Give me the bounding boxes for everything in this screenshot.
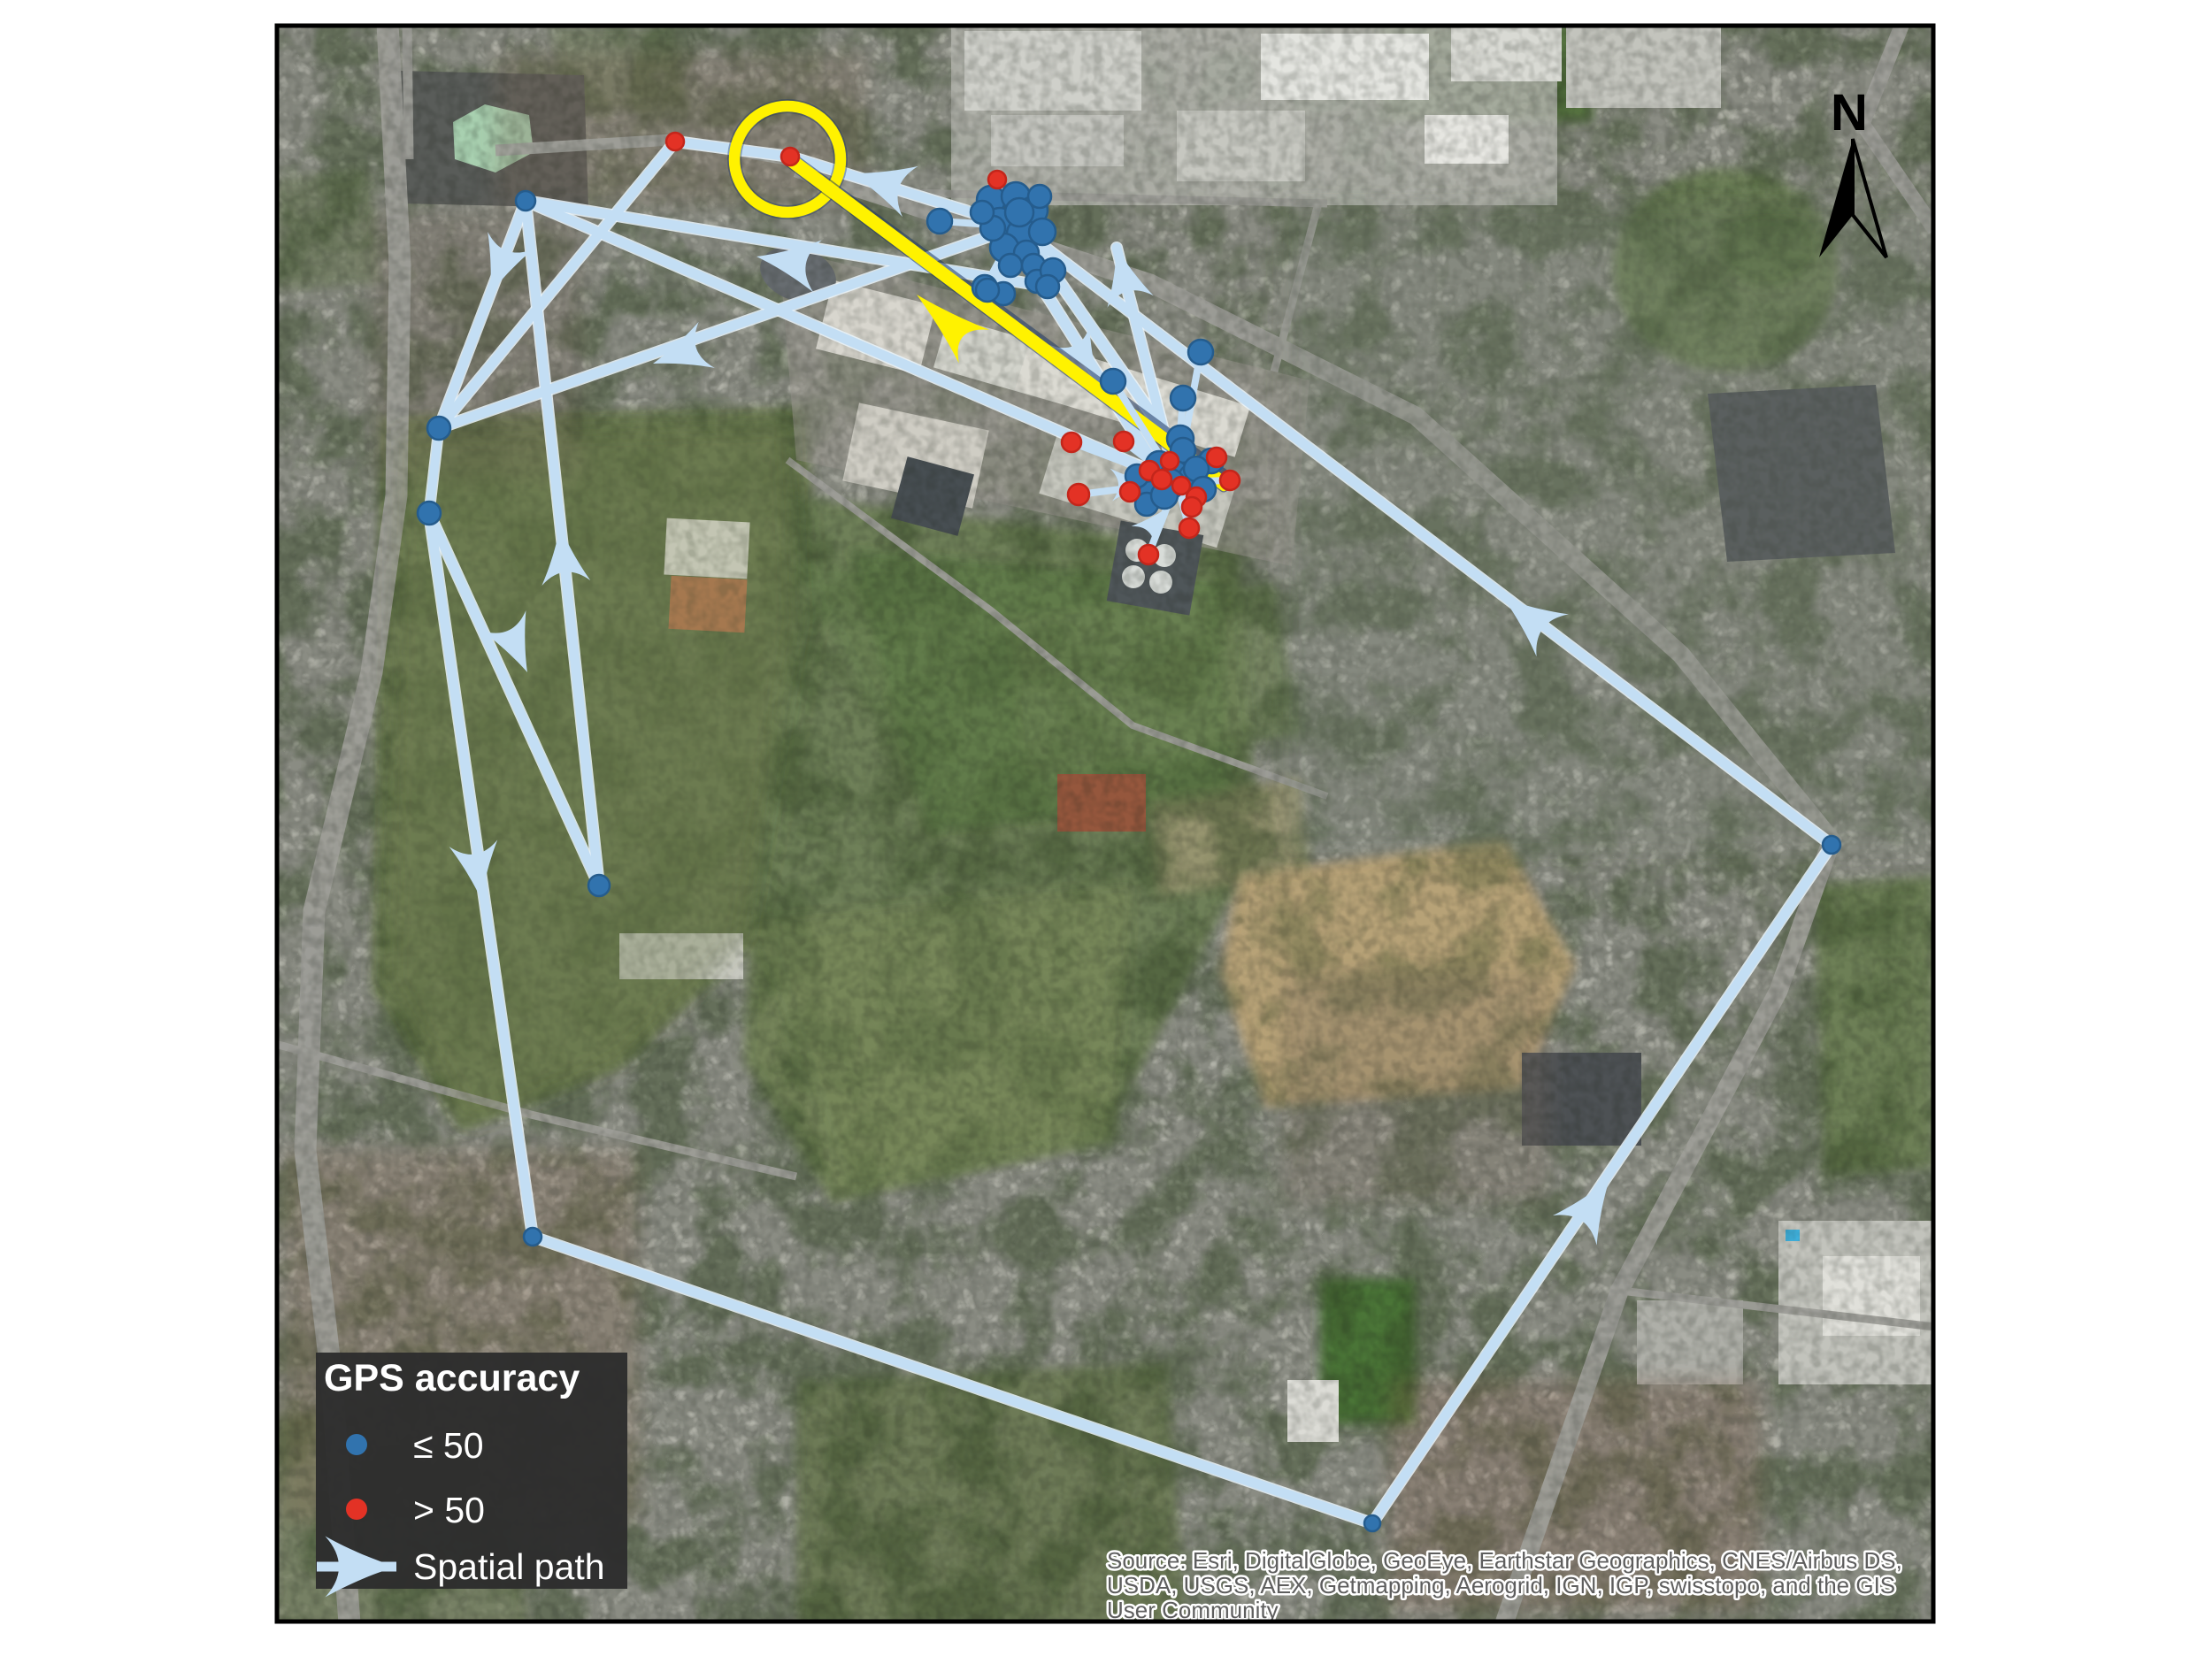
svg-text:Spatial path: Spatial path bbox=[413, 1546, 605, 1587]
svg-text:Source: Esri, DigitalGlobe, Ge: Source: Esri, DigitalGlobe, GeoEye, Eart… bbox=[1107, 1547, 1902, 1574]
svg-text:GPS accuracy: GPS accuracy bbox=[324, 1357, 580, 1399]
svg-text:≤ 50: ≤ 50 bbox=[413, 1425, 484, 1466]
svg-text:N: N bbox=[1831, 84, 1868, 142]
svg-text:USDA, USGS, AEX, Getmapping, A: USDA, USGS, AEX, Getmapping, Aerogrid, I… bbox=[1107, 1572, 1895, 1598]
svg-text:> 50: > 50 bbox=[413, 1490, 485, 1530]
